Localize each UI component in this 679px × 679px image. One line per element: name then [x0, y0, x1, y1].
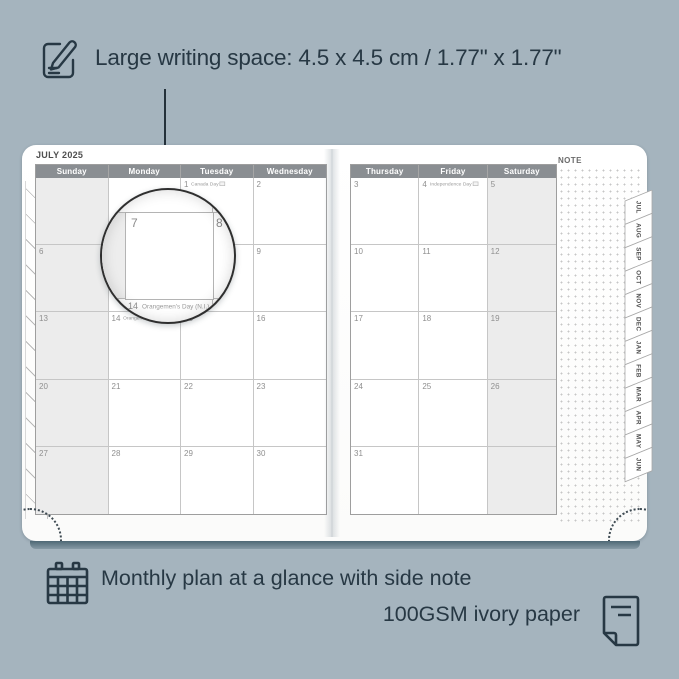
day-number: 2: [257, 180, 261, 189]
month-tab-label: OCT: [635, 270, 642, 284]
weekday-header: Tuesday: [181, 165, 254, 178]
magnified-writing-cell: [125, 212, 214, 300]
calendar-cell: 9: [254, 245, 327, 312]
calendar-cell: 2: [254, 178, 327, 245]
day-number: 25: [422, 382, 431, 391]
day-number: 6: [39, 247, 43, 256]
calendar-grid-icon: [44, 560, 91, 608]
month-tab-label: DEC: [635, 317, 642, 331]
day-number: 29: [184, 449, 193, 458]
day-number: 4: [422, 180, 426, 189]
calendar-cell: 10: [351, 245, 419, 312]
month-tab-label: AUG: [635, 223, 642, 238]
paper-sheet-icon: [598, 594, 642, 650]
pencil-note-icon: [38, 34, 81, 81]
magnified-day-number-next: 8: [216, 216, 223, 230]
day-number: 28: [112, 449, 121, 458]
calendar-cell: 5: [488, 178, 556, 245]
calendar-cell: 21: [109, 380, 182, 447]
month-tabs: JULAUGSEPOCTNOVDECJANFEBMARAPRMAYJUN: [624, 190, 654, 484]
stitch-corner-left: [22, 500, 92, 541]
month-tab-label: JAN: [635, 341, 642, 355]
calendar-cell: 28: [109, 447, 182, 514]
magnified-holiday-text: Orangemen's Day (N.I.): [142, 302, 209, 309]
day-number: 19: [491, 314, 500, 323]
month-tab-label: FEB: [635, 364, 642, 378]
day-number: 12: [491, 247, 500, 256]
day-number: 23: [257, 382, 266, 391]
day-number: 3: [354, 180, 358, 189]
day-number: 24: [354, 382, 363, 391]
top-annotation-text: Large writing space: 4.5 x 4.5 cm / 1.77…: [95, 45, 561, 71]
calendar-cell: 26: [488, 380, 556, 447]
calendar-cell: 30: [254, 447, 327, 514]
top-annotation: Large writing space: 4.5 x 4.5 cm / 1.77…: [38, 34, 561, 81]
calendar-cell: 16: [254, 312, 327, 379]
day-number: 26: [491, 382, 500, 391]
weekday-header: Saturday: [488, 165, 556, 178]
stitch-corner-right: [595, 500, 647, 541]
day-number: 9: [257, 247, 261, 256]
weekday-header: Wednesday: [254, 165, 327, 178]
product-image: Large writing space: 4.5 x 4.5 cm / 1.77…: [0, 0, 679, 679]
calendar-cell: 22: [181, 380, 254, 447]
day-number: 5: [491, 180, 495, 189]
center-seam: [324, 149, 340, 537]
day-number: 17: [354, 314, 363, 323]
day-number: 22: [184, 382, 193, 391]
calendar-cell: 15: [181, 312, 254, 379]
month-tab-label: NOV: [635, 293, 642, 308]
day-number: 31: [354, 449, 363, 458]
calendar-cell: 23: [254, 380, 327, 447]
calendar-cell: 25: [419, 380, 487, 447]
day-number: 13: [39, 314, 48, 323]
calendar-cell: 29: [181, 447, 254, 514]
month-tab-label: MAY: [635, 434, 642, 449]
calendar-cell: [419, 447, 487, 514]
day-number: 21: [112, 382, 121, 391]
holiday-label: Canada Day: [191, 181, 225, 187]
calendar-cell: [488, 447, 556, 514]
calendar-right-page: ThursdayFridaySaturday34Independence Day…: [350, 164, 557, 515]
month-tab-label: JUL: [635, 201, 642, 214]
note-label: NOTE: [558, 156, 582, 165]
weekday-header: Monday: [109, 165, 182, 178]
day-number: 10: [354, 247, 363, 256]
calendar-cell: 11: [419, 245, 487, 312]
magnified-holiday-day: 14: [128, 301, 138, 311]
calendar-cell: 4Independence Day: [419, 178, 487, 245]
planner-spread: JULY 2025 SundayMondayTuesdayWednesday1C…: [22, 145, 647, 541]
calendar-cell: 3: [351, 178, 419, 245]
day-number: 27: [39, 449, 48, 458]
calendar-cell: 24: [351, 380, 419, 447]
day-number: 30: [257, 449, 266, 458]
month-tab-label: SEP: [635, 247, 642, 261]
calendar-cell: [36, 178, 109, 245]
calendar-cell: 12: [488, 245, 556, 312]
day-number: 1: [184, 180, 188, 189]
day-number: 14: [112, 314, 121, 323]
flag-icon: [473, 182, 479, 186]
month-title: JULY 2025: [36, 150, 83, 160]
bottom-annotation-line1: Monthly plan at a glance with side note: [101, 566, 472, 591]
weekday-header: Sunday: [36, 165, 109, 178]
calendar-cell: 19: [488, 312, 556, 379]
calendar-cell: 31: [351, 447, 419, 514]
day-number: 18: [422, 314, 431, 323]
magnified-day-number: 7: [131, 216, 138, 230]
weekday-header: Friday: [419, 165, 487, 178]
day-number: 16: [257, 314, 266, 323]
magnified-weekend-shade: [102, 212, 125, 298]
day-number: 20: [39, 382, 48, 391]
calendar-cell: 18: [419, 312, 487, 379]
weekday-header: Thursday: [351, 165, 419, 178]
flag-icon: [220, 182, 226, 186]
month-tab-label: APR: [635, 411, 642, 425]
calendar-cell: 17: [351, 312, 419, 379]
page-bottom-edge: [30, 541, 640, 549]
month-tab-label: MAR: [635, 387, 642, 402]
calendar-cell: 6: [36, 245, 109, 312]
magnified-holiday-row: 14 Orangemen's Day (N.I.): [128, 301, 236, 311]
bottom-annotation-line2: 100GSM ivory paper: [383, 602, 580, 627]
calendar-cell: 13: [36, 312, 109, 379]
day-number: 11: [422, 247, 430, 256]
month-tab-label: JUN: [635, 458, 642, 472]
holiday-label: Independence Day: [430, 181, 478, 187]
calendar-cell: 20: [36, 380, 109, 447]
magnifier-circle: 7 8 14 Orangemen's Day (N.I.): [100, 188, 236, 324]
